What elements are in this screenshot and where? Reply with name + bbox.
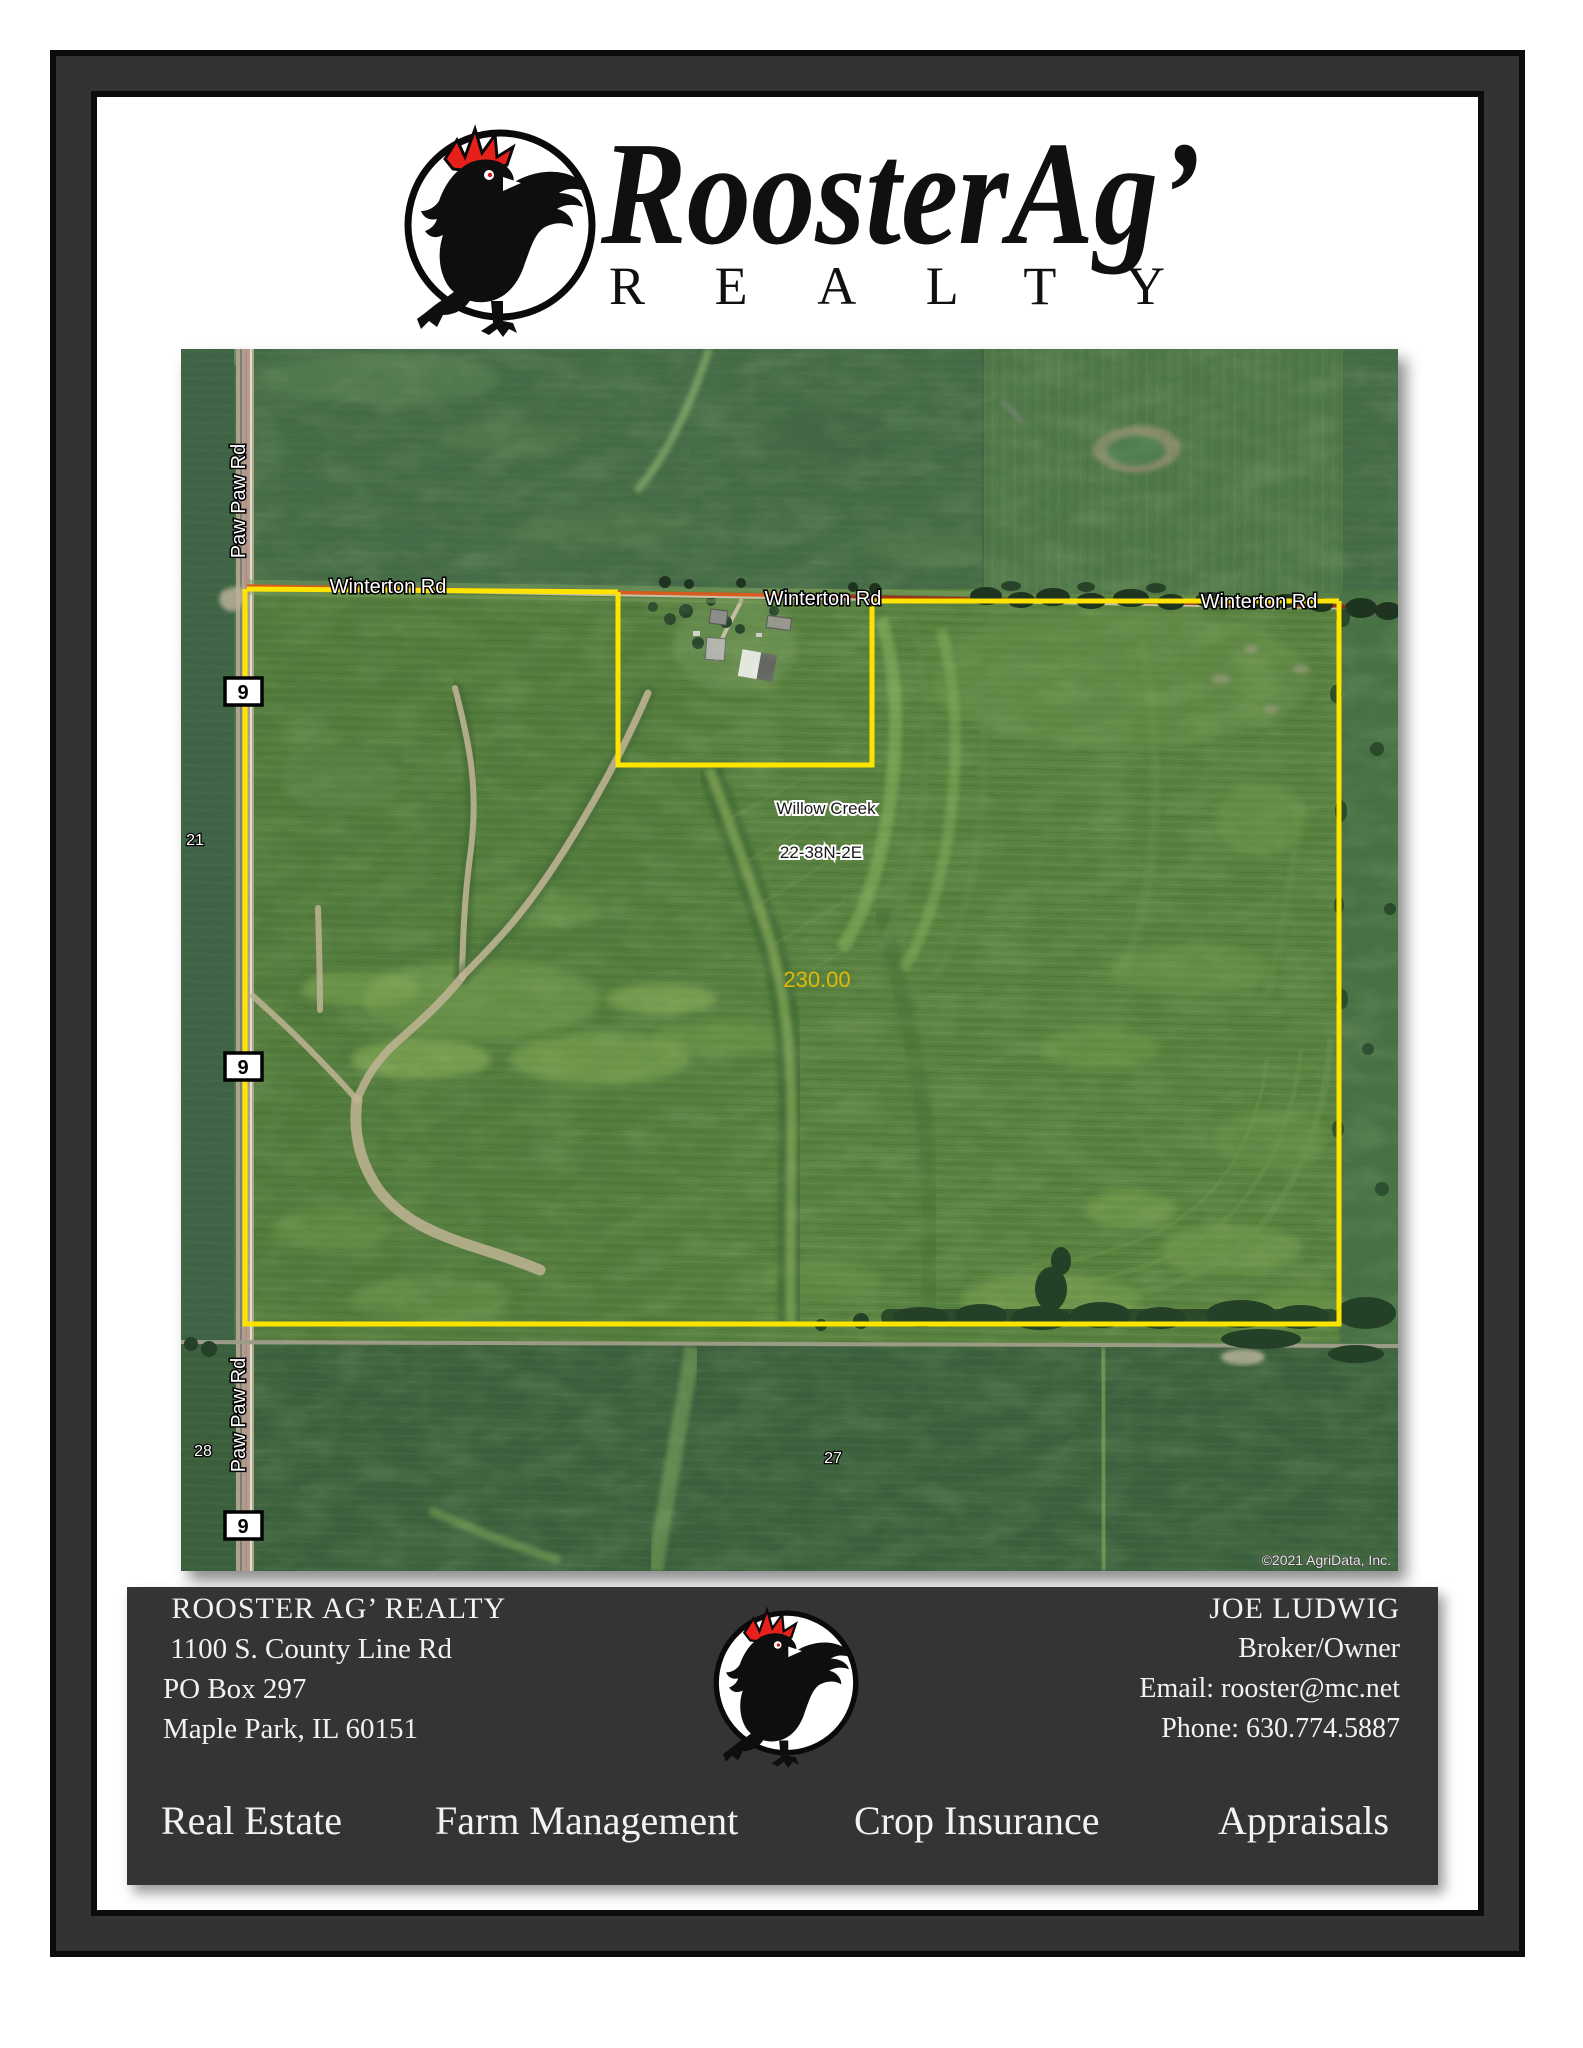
svg-text:Paw Paw Rd: Paw Paw Rd [228, 1358, 250, 1473]
svg-text:Winterton Rd: Winterton Rd [1201, 591, 1318, 613]
svg-text:9: 9 [237, 1057, 248, 1079]
svg-text:27: 27 [824, 1450, 842, 1467]
svg-text:RoosterAg’: RoosterAg’ [600, 112, 1201, 276]
svg-text:230.00: 230.00 [783, 967, 850, 992]
svg-text:©2021 AgriData, Inc.: ©2021 AgriData, Inc. [1262, 1552, 1391, 1568]
svg-text:9: 9 [237, 1516, 248, 1538]
svg-text:Winterton Rd: Winterton Rd [765, 588, 882, 610]
svg-text:21: 21 [186, 832, 204, 849]
svg-text:Willow Creek: Willow Creek [776, 799, 876, 818]
svg-text:28: 28 [194, 1443, 212, 1460]
svg-text:Winterton Rd: Winterton Rd [330, 576, 447, 598]
svg-text:Paw Paw Rd: Paw Paw Rd [228, 444, 250, 559]
svg-text:9: 9 [237, 682, 248, 704]
svg-text:22-38N-2E: 22-38N-2E [780, 843, 862, 862]
